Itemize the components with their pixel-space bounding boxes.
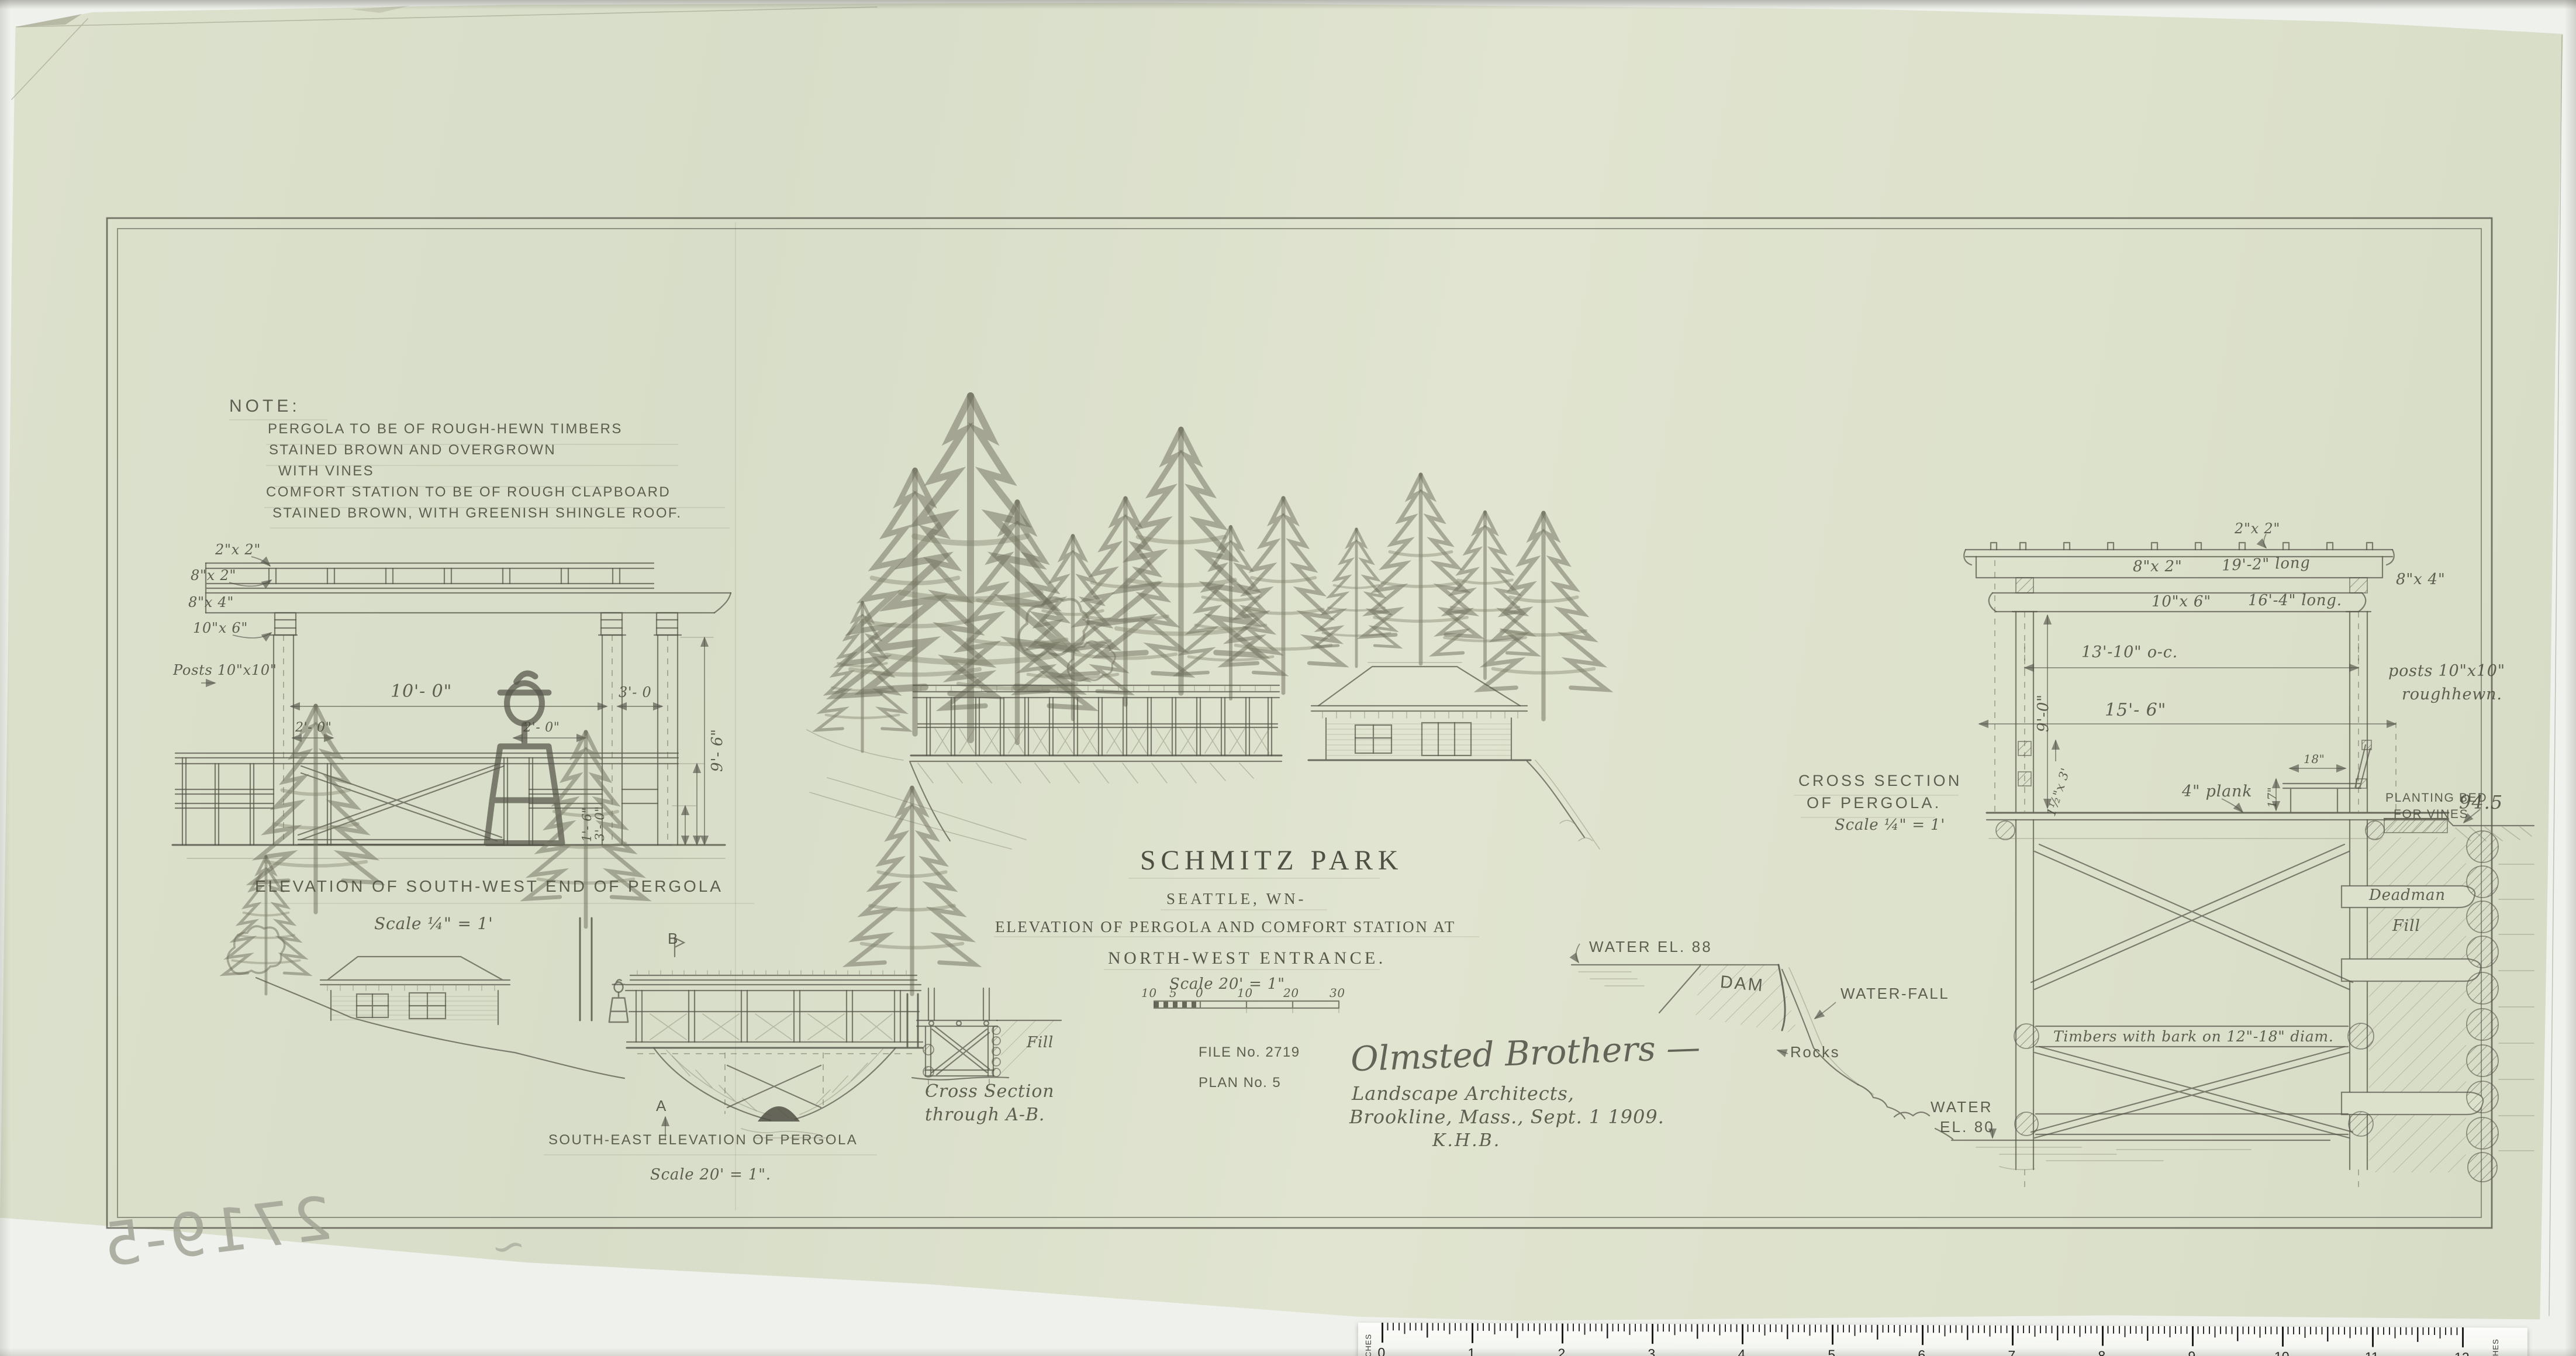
sheet-subtitle-2: NORTH-WEST ENTRANCE. <box>1108 950 1386 967</box>
note-line-2: STAINED BROWN AND OVERGROWN <box>269 443 556 457</box>
xp-bed-note-2: FOR VINES <box>2394 808 2468 820</box>
ruler-inches-label-right: INCHES <box>2491 1338 2500 1356</box>
xp-dim-8x2: 8"x 2" <box>2133 559 2183 574</box>
xp-dim-10x6: 10"x 6" <box>2152 594 2211 609</box>
ruler-number-7: 7 <box>2003 1348 2021 1356</box>
scalebar-num-20: 20 <box>1283 987 1299 999</box>
scanner-ruler: 0 1 2 3 4 5 6 7 8 9 10 11 12 INCHES INCH… <box>1358 1323 2527 1356</box>
ruler-ticks-inch <box>1382 1323 2467 1347</box>
sw-dim-left2: 2'- 0" <box>295 722 332 734</box>
xp-dim-8x4: 8"x 4" <box>2396 572 2446 587</box>
water-el-80-value: EL. 80 <box>1940 1119 1995 1134</box>
scalebar-num-30: 30 <box>1330 987 1345 999</box>
xsec-ab-caption-2: through A-B. <box>925 1106 1045 1124</box>
sw-dim-bay: 3'- 0 <box>619 685 651 699</box>
ruler-number-9: 9 <box>2183 1348 2201 1356</box>
xp-dim-17: 17" <box>2266 787 2278 808</box>
paper-edge-marks <box>12 6 2562 1316</box>
se-marker-a: A <box>656 1098 666 1113</box>
center-scene-drawing <box>807 396 1607 849</box>
se-marker-b: B <box>668 931 678 946</box>
rocks-label: Rocks <box>1790 1044 1840 1060</box>
note-line-5: STAINED BROWN, WITH GREENISH SHINGLE ROO… <box>272 506 682 520</box>
file-number: FILE No. 2719 <box>1199 1046 1300 1060</box>
se-elevation-drawing <box>224 706 975 1140</box>
se-scale: Scale 20' = 1". <box>650 1167 771 1182</box>
sw-dim-8x4: 8"x 4" <box>188 595 234 609</box>
sheet-city: SEATTLE, WN- <box>1166 891 1306 907</box>
ruler-inches-label-left: INCHES <box>1364 1334 1373 1356</box>
scanned-drawing-sheet: NOTE: PERGOLA TO BE OF ROUGH-HEWN TIMBER… <box>0 0 2576 1356</box>
xsec-ab-caption-1: Cross Section <box>925 1083 1055 1100</box>
note-heading: NOTE: <box>229 398 301 415</box>
ruler-number-12: 12 <box>2453 1350 2471 1356</box>
xp-scale: Scale ¼" = 1' <box>1835 817 1945 833</box>
xp-dim-2x2: 2"x 2" <box>2235 522 2280 536</box>
ruler-number-3: 3 <box>1643 1346 1660 1356</box>
xp-posts-note-2: roughhewn. <box>2402 686 2502 702</box>
xp-posts-note-1: posts 10"x10" <box>2388 663 2505 679</box>
ruler-number-6: 6 <box>1913 1347 1931 1356</box>
sw-caption: ELEVATION OF SOUTH-WEST END OF PERGOLA <box>255 878 723 895</box>
xp-dim-18: 18" <box>2304 753 2325 765</box>
sw-dim-v96: 9'- 6" <box>710 729 725 772</box>
sw-dim-v16: 1'- 6" <box>581 807 593 842</box>
xp-dim-15-6: 15'- 6" <box>2105 702 2166 719</box>
sw-dim-8x2: 8"x 2" <box>191 568 236 582</box>
sw-dim-2x2: 2"x 2" <box>215 543 261 557</box>
ruler-number-2: 2 <box>1553 1345 1570 1356</box>
sw-scale: Scale ¼" = 1' <box>374 916 493 932</box>
xp-fill-label: Fill <box>2392 918 2420 934</box>
xp-timbers-note: Timbers with bark on 12"-18" diam. <box>2053 1029 2334 1044</box>
xp-dim-16-4: 16'-4" long. <box>2248 593 2342 608</box>
waterfall-label: WATER-FALL <box>1841 986 1949 1001</box>
xp-deadman-label: Deadman <box>2369 888 2446 903</box>
dam-label: DAM <box>1719 974 1765 995</box>
se-caption: SOUTH-EAST ELEVATION OF PERGOLA <box>548 1133 858 1147</box>
sw-dim-10x6: 10"x 6" <box>193 621 248 635</box>
sheet-subtitle-1: ELEVATION OF PERGOLA AND COMFORT STATION… <box>995 919 1456 935</box>
xsec-pergola-drawing <box>1964 534 2534 1187</box>
xp-dim-9-0: 9'-0" <box>2036 694 2051 732</box>
xp-dim-oc: 13'-10" o-c. <box>2081 644 2178 660</box>
xsec-ab-fill: Fill <box>1027 1035 1054 1050</box>
ruler-number-11: 11 <box>2363 1350 2381 1356</box>
sw-elevation-drawing <box>172 557 731 858</box>
ruler-number-10: 10 <box>2273 1349 2291 1356</box>
note-line-4: COMFORT STATION TO BE OF ROUGH CLAPBOARD <box>266 485 671 499</box>
graphic-scale-bar <box>1154 1001 1339 1013</box>
ruler-number-5: 5 <box>1823 1347 1841 1356</box>
border-frame <box>107 218 2492 1228</box>
scalebar-num-5: 5 <box>1169 987 1177 999</box>
sheet-title: SCHMITZ PARK <box>1140 847 1403 875</box>
scalebar-num-0: 0 <box>1196 987 1203 999</box>
xp-elev-945: 94.5 <box>2459 793 2503 812</box>
sheet-scale: Scale 20' = 1" <box>1169 977 1285 992</box>
sw-dim-v30: 3'- 0" <box>594 806 606 841</box>
ruler-number-0: 0 <box>1373 1345 1390 1356</box>
xp-caption-2: OF PERGOLA. <box>1807 795 1942 811</box>
xp-dim-19-2: 19'-2" long <box>2222 555 2311 573</box>
xp-caption-1: CROSS SECTION <box>1798 773 1962 789</box>
signature-line-1: Landscape Architects, <box>1352 1084 1574 1103</box>
note-line-3: WITH VINES <box>278 464 374 478</box>
scalebar-num-10L: 10 <box>1141 987 1157 999</box>
scalebar-num-10: 10 <box>1237 987 1253 999</box>
ruler-number-1: 1 <box>1463 1345 1480 1356</box>
sw-dim-posts: Posts 10"x10" <box>173 663 277 677</box>
ruler-number-8: 8 <box>2093 1348 2111 1356</box>
sw-dim-span: 10'- 0" <box>391 683 452 701</box>
pencil-linework <box>0 0 2576 1356</box>
sw-dim-right2: 2'- 0" <box>523 722 560 734</box>
xp-plank-note: 4" plank <box>2182 784 2252 799</box>
ruler-number-4: 4 <box>1733 1347 1750 1356</box>
water-el-88: WATER EL. 88 <box>1589 939 1712 954</box>
signature-line-2: Brookline, Mass., Sept. 1 1909. <box>1349 1107 1665 1126</box>
water-el-80-word: WATER <box>1931 1099 1993 1115</box>
signature-initials: K.H.B. <box>1432 1132 1501 1150</box>
plan-number: PLAN No. 5 <box>1199 1076 1281 1090</box>
note-line-1: PERGOLA TO BE OF ROUGH-HEWN TIMBERS <box>268 422 623 436</box>
